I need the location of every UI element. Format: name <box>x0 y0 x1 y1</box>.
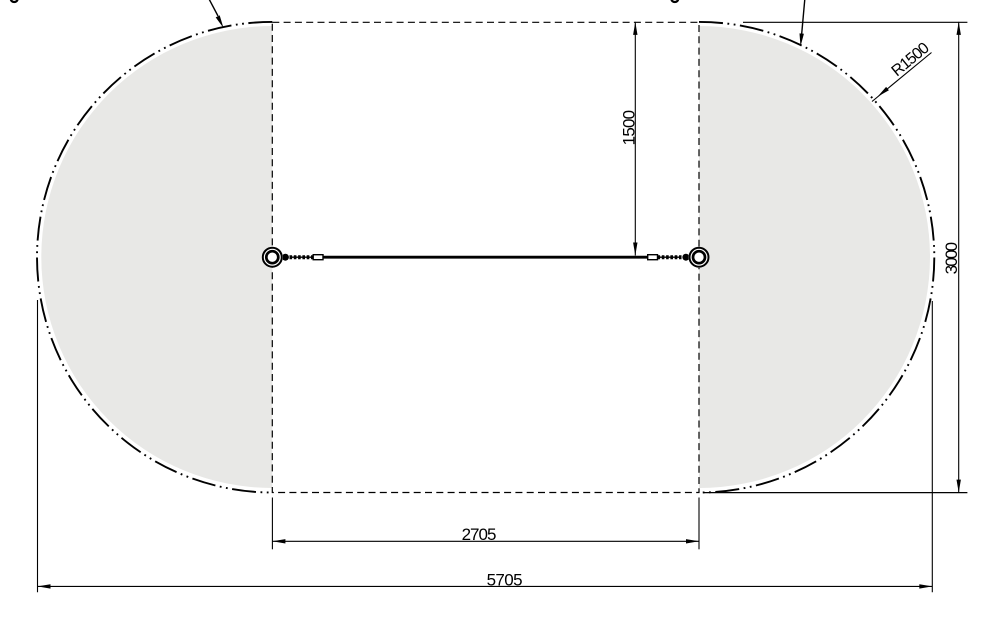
svg-text:2705: 2705 <box>462 525 496 544</box>
svg-text:5705: 5705 <box>487 570 523 589</box>
svg-text:1500: 1500 <box>620 110 639 145</box>
svg-text:3000: 3000 <box>942 242 961 274</box>
